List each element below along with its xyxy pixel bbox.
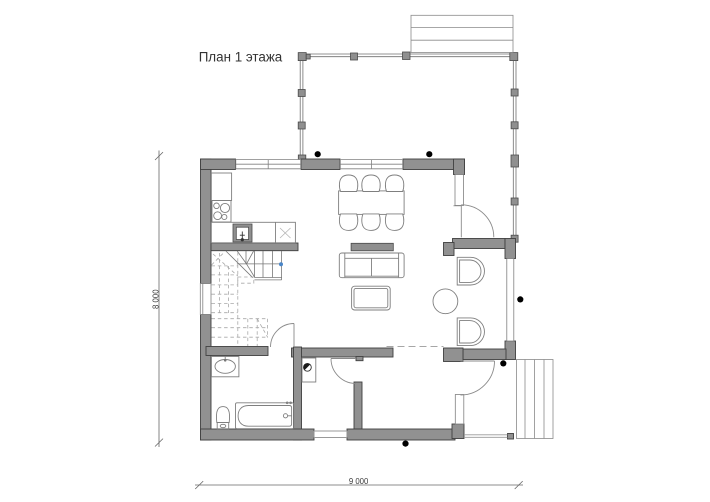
svg-text:9 000: 9 000: [349, 477, 369, 486]
svg-text:План 1 этажа: План 1 этажа: [199, 49, 283, 64]
svg-text:8 000: 8 000: [151, 289, 160, 309]
